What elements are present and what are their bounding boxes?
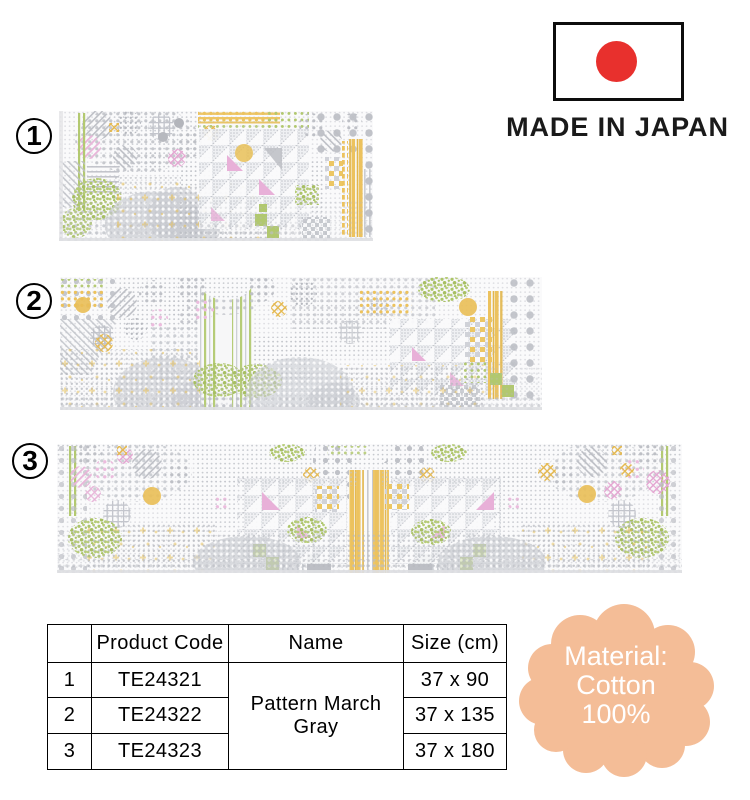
svg-text:Material:: Material: [564, 641, 668, 671]
svg-text:Cotton: Cotton [576, 670, 656, 700]
svg-text:100%: 100% [581, 699, 650, 729]
